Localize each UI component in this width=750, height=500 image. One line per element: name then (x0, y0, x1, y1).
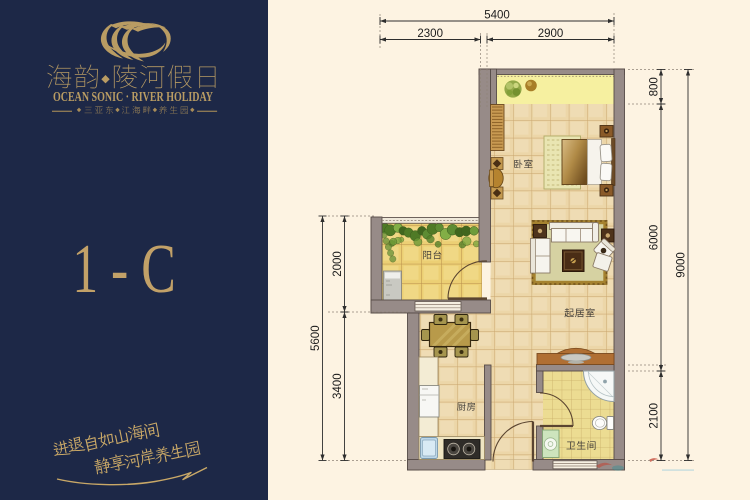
svg-text:2900: 2900 (538, 28, 564, 40)
svg-text:5400: 5400 (484, 10, 510, 22)
svg-text:3400: 3400 (332, 373, 344, 399)
svg-text:800: 800 (649, 77, 661, 96)
svg-text:5600: 5600 (310, 325, 322, 351)
svg-text:9000: 9000 (676, 252, 688, 278)
svg-text:2300: 2300 (417, 28, 443, 40)
svg-text:2100: 2100 (649, 403, 661, 429)
svg-text:6000: 6000 (649, 225, 661, 251)
svg-text:2000: 2000 (332, 251, 344, 277)
